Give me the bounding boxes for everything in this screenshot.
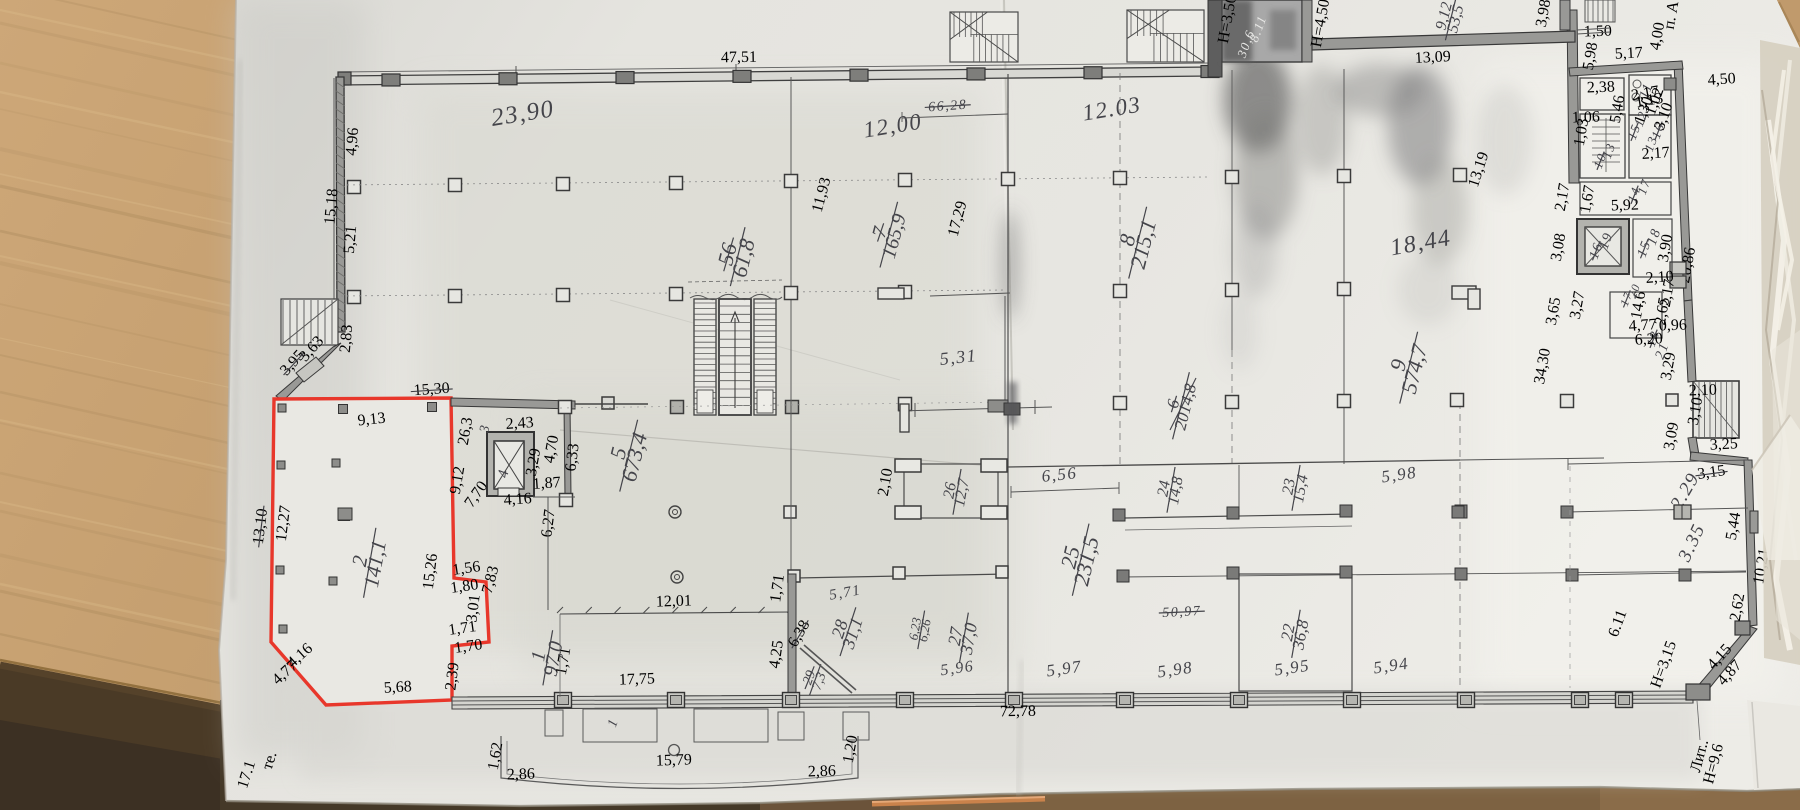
svg-text:2,17: 2,17: [1641, 144, 1670, 163]
svg-text:4,50: 4,50: [1707, 70, 1736, 89]
svg-text:47,51: 47,51: [721, 49, 757, 67]
svg-text:5,68: 5,68: [383, 678, 412, 696]
svg-text:2,86: 2,86: [808, 763, 837, 781]
svg-text:9,13: 9,13: [357, 410, 387, 430]
svg-text:5,21: 5,21: [341, 225, 360, 254]
svg-text:4,96: 4,96: [343, 127, 362, 156]
svg-text:4,16: 4,16: [503, 490, 532, 509]
svg-text:0,96: 0,96: [1659, 317, 1688, 335]
svg-text:6,27: 6,27: [538, 509, 558, 539]
svg-text:13,09: 13,09: [1414, 48, 1451, 67]
svg-text:6,33: 6,33: [562, 443, 582, 473]
svg-text:2,39: 2,39: [442, 662, 462, 692]
svg-text:72,78: 72,78: [1000, 703, 1036, 721]
svg-text:15,18: 15,18: [321, 188, 341, 225]
svg-text:2,38: 2,38: [1587, 79, 1616, 97]
svg-text:15,79: 15,79: [656, 751, 693, 769]
svg-text:1,87: 1,87: [532, 474, 561, 493]
svg-text:3,25: 3,25: [1709, 435, 1738, 453]
svg-text:2,43: 2,43: [505, 414, 534, 433]
svg-text:2,83: 2,83: [337, 324, 356, 353]
svg-text:17,75: 17,75: [619, 670, 656, 688]
svg-text:5,31: 5,31: [939, 345, 978, 369]
svg-text:1,50: 1,50: [1584, 23, 1613, 41]
svg-text:12,01: 12,01: [656, 592, 693, 610]
svg-text:5,17: 5,17: [1614, 44, 1643, 62]
svg-text:3,01: 3,01: [463, 594, 483, 624]
svg-text:6,56: 6,56: [1041, 463, 1079, 486]
svg-text:2,86: 2,86: [507, 766, 536, 784]
